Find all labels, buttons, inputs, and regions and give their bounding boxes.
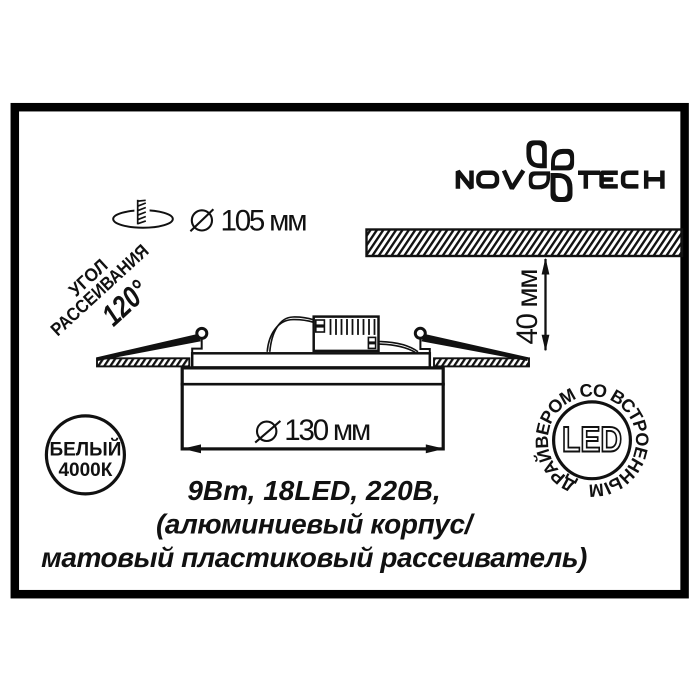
svg-text:БЕЛЫЙ: БЕЛЫЙ (49, 439, 121, 461)
svg-text:130 мм: 130 мм (284, 414, 370, 447)
svg-text:9Вт, 18LED, 220В,: 9Вт, 18LED, 220В, (187, 475, 440, 506)
svg-text:105 мм: 105 мм (221, 205, 307, 238)
svg-text:матовый пластиковый рассеивате: матовый пластиковый рассеиватель) (41, 542, 587, 573)
svg-text:40 мм: 40 мм (511, 270, 544, 345)
svg-text:(алюминиевый корпус/: (алюминиевый корпус/ (156, 509, 476, 540)
svg-text:4000К: 4000К (58, 460, 112, 481)
svg-text:LED: LED (562, 421, 622, 460)
